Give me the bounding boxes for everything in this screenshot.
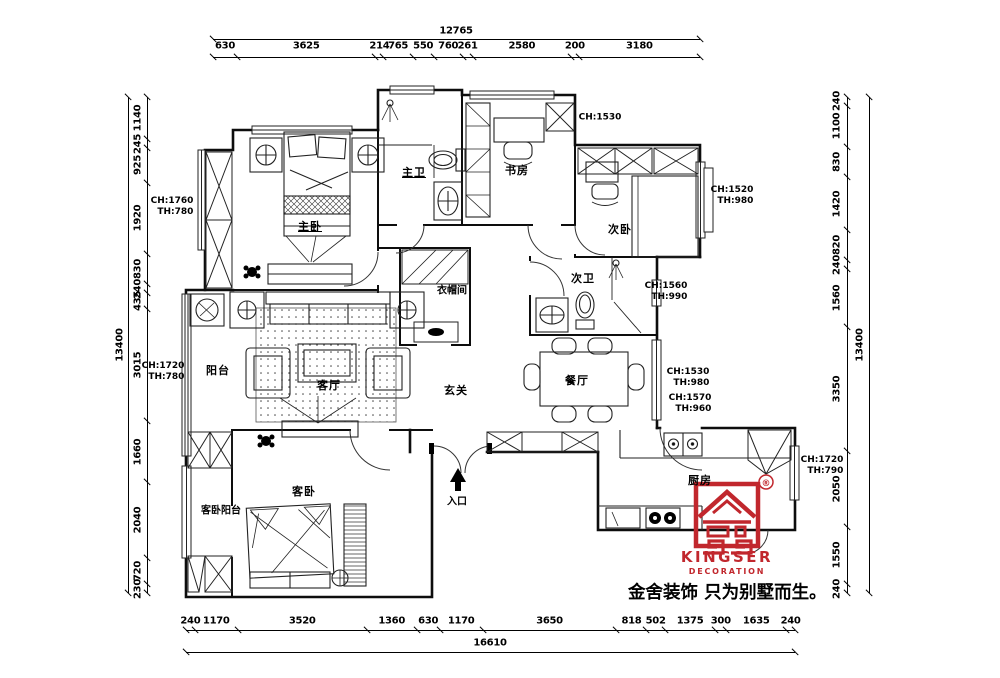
dim-seg-top: 760 bbox=[438, 41, 458, 52]
dim-seg-top: 214 bbox=[369, 41, 389, 52]
dim-seg-bottom: 1170 bbox=[448, 616, 475, 627]
dim-seg-top: 765 bbox=[388, 41, 408, 52]
dim-seg-left: 2040 bbox=[133, 507, 144, 534]
dim-total-line-left bbox=[128, 97, 129, 593]
dim-seg-bottom: 1635 bbox=[743, 616, 770, 627]
dim-seg-top: 261 bbox=[458, 41, 478, 52]
dim-seg-right: 830 bbox=[832, 152, 843, 172]
dim-total-line-bottom bbox=[186, 652, 795, 653]
dim-seg-bottom: 240 bbox=[781, 616, 801, 627]
dim-seg-top: 550 bbox=[413, 41, 433, 52]
dim-line-left bbox=[147, 97, 148, 593]
dim-seg-left: 925 bbox=[133, 155, 144, 175]
dim-line-right bbox=[847, 97, 848, 593]
dim-seg-left: 830 bbox=[133, 259, 144, 279]
floor-plan-page: ® KINGSER DECORATION 主卧 主卫 书房 次卧 衣帽间 次卫 … bbox=[0, 0, 1000, 678]
dim-seg-top: 3625 bbox=[293, 41, 320, 52]
dim-total-bottom: 16610 bbox=[473, 638, 506, 649]
dim-seg-bottom: 1360 bbox=[378, 616, 405, 627]
dim-seg-bottom: 300 bbox=[711, 616, 731, 627]
dim-seg-right: 820 bbox=[832, 235, 843, 255]
dim-seg-right: 1550 bbox=[832, 542, 843, 569]
dim-seg-bottom: 818 bbox=[621, 616, 641, 627]
dim-total-right: 13400 bbox=[855, 328, 866, 361]
dim-seg-right: 1560 bbox=[832, 285, 843, 312]
dim-seg-bottom: 1170 bbox=[203, 616, 230, 627]
dim-line-top bbox=[213, 57, 700, 58]
dim-total-left: 13400 bbox=[115, 328, 126, 361]
dimension-chains: 6303625214765550760261258020031801276524… bbox=[0, 0, 1000, 678]
dim-seg-bottom: 630 bbox=[418, 616, 438, 627]
dim-line-bottom bbox=[186, 630, 795, 631]
dim-seg-top: 630 bbox=[215, 41, 235, 52]
dim-seg-bottom: 3520 bbox=[289, 616, 316, 627]
dim-seg-bottom: 1375 bbox=[677, 616, 704, 627]
dim-seg-bottom: 240 bbox=[180, 616, 200, 627]
dim-seg-left: 3015 bbox=[133, 352, 144, 379]
dim-seg-right: 2050 bbox=[832, 475, 843, 502]
dim-seg-bottom: 502 bbox=[646, 616, 666, 627]
dim-seg-left: 1920 bbox=[133, 205, 144, 232]
dim-seg-top: 3180 bbox=[626, 41, 653, 52]
dim-seg-right: 1420 bbox=[832, 190, 843, 217]
dim-seg-left: 245 bbox=[133, 134, 144, 154]
dim-seg-left: 1660 bbox=[133, 438, 144, 465]
dim-total-line-right bbox=[869, 97, 870, 593]
dim-seg-top: 2580 bbox=[509, 41, 536, 52]
dim-seg-left: 435 bbox=[133, 291, 144, 311]
dim-seg-left: 1140 bbox=[133, 105, 144, 132]
dim-seg-left: 230 bbox=[133, 579, 144, 599]
dim-seg-right: 3350 bbox=[832, 376, 843, 403]
dim-total-top: 12765 bbox=[439, 26, 472, 37]
dim-seg-right: 240 bbox=[832, 91, 843, 111]
dim-seg-right: 240 bbox=[832, 579, 843, 599]
dim-seg-right: 240 bbox=[832, 255, 843, 275]
dim-seg-bottom: 3650 bbox=[536, 616, 563, 627]
dim-seg-top: 200 bbox=[565, 41, 585, 52]
dim-seg-right: 1100 bbox=[832, 113, 843, 140]
